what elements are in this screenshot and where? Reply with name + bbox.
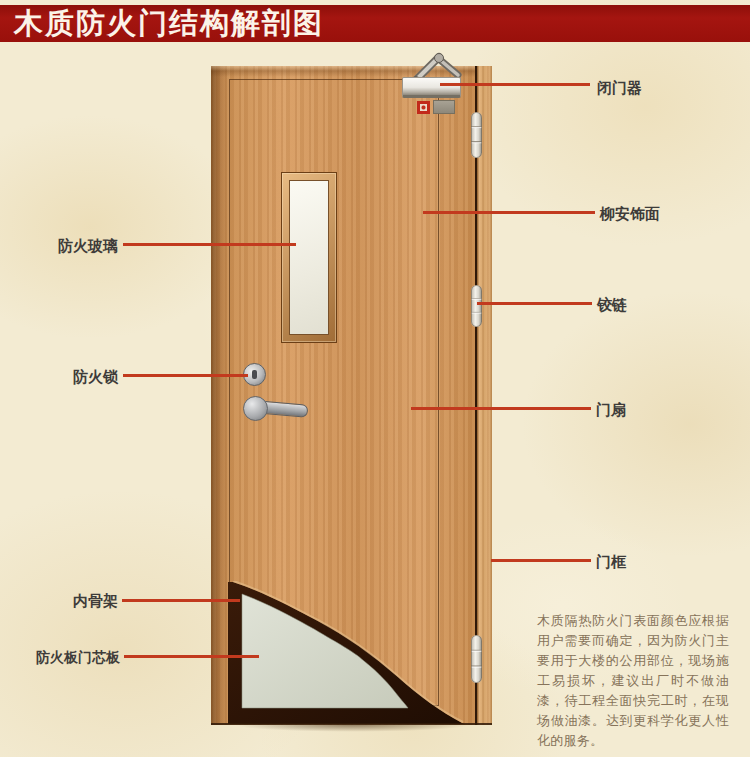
callout-label: 门框 <box>596 554 626 569</box>
callout-line <box>123 243 296 246</box>
callout-line <box>124 655 259 658</box>
hinge-bottom <box>471 635 482 683</box>
door-closer-body <box>402 77 461 98</box>
strike-plate <box>433 100 455 114</box>
window-glass <box>289 180 329 335</box>
callout-label: 门扇 <box>596 402 626 417</box>
callout-line <box>423 211 595 214</box>
door-cutaway <box>211 581 475 725</box>
fire-glass-window <box>281 172 337 343</box>
callout-label: 防火玻璃 <box>18 238 118 253</box>
description-text: 木质隔热防火门表面颜色应根据用户需要而确定，因为防火门主要用于大楼的公用部位，现… <box>537 611 729 751</box>
handle-rosette <box>243 396 268 421</box>
callout-label: 防火锁 <box>18 369 118 384</box>
fire-door-illustration <box>211 66 492 725</box>
door-bottom-edge <box>211 723 492 725</box>
callout-line <box>477 302 592 305</box>
callout-label: 防火板门芯板 <box>8 650 120 665</box>
title-banner: 木质防火门结构解剖图 <box>0 5 750 42</box>
hinge-top <box>471 112 482 158</box>
door-frame-strip <box>477 66 492 725</box>
keyhole <box>252 370 257 379</box>
callout-line <box>123 374 248 377</box>
callout-line <box>411 407 591 410</box>
hinge-middle <box>471 285 482 327</box>
page-title: 木质防火门结构解剖图 <box>14 5 324 42</box>
alarm-indicator <box>417 101 430 114</box>
callout-line <box>491 559 591 562</box>
callout-label: 铰链 <box>597 297 627 312</box>
callout-label: 内骨架 <box>18 593 118 608</box>
callout-label: 闭门器 <box>597 80 642 95</box>
core-panel <box>242 594 408 708</box>
callout-line <box>440 83 590 86</box>
callout-label: 柳安饰面 <box>600 206 660 221</box>
diagram-page: 木质防火门结构解剖图 <box>0 0 750 757</box>
callout-line <box>122 599 240 602</box>
